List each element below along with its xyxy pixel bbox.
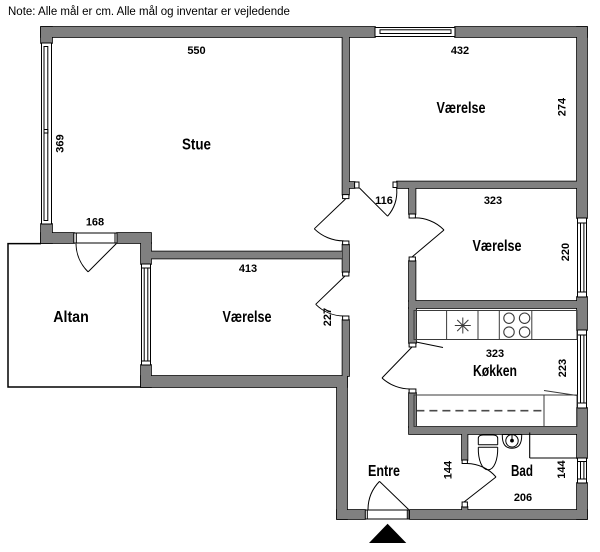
svg-text:369: 369 <box>55 134 67 152</box>
svg-text:Værelse: Værelse <box>437 100 486 117</box>
svg-text:Værelse: Værelse <box>223 309 272 326</box>
svg-text:Altan: Altan <box>53 309 89 326</box>
svg-text:220: 220 <box>560 243 572 261</box>
svg-text:Stue: Stue <box>182 137 211 154</box>
svg-text:Værelse: Værelse <box>473 238 522 255</box>
svg-text:223: 223 <box>557 359 569 377</box>
svg-text:Køkken: Køkken <box>473 363 517 380</box>
svg-text:168: 168 <box>86 217 104 229</box>
svg-text:274: 274 <box>557 97 569 116</box>
svg-text:323: 323 <box>484 195 502 207</box>
svg-text:227: 227 <box>322 308 334 326</box>
svg-text:116: 116 <box>375 195 393 207</box>
svg-text:Bad: Bad <box>511 463 533 480</box>
svg-text:Entre: Entre <box>368 463 400 480</box>
svg-text:432: 432 <box>451 45 469 57</box>
svg-text:144: 144 <box>556 459 568 478</box>
svg-text:323: 323 <box>486 348 504 360</box>
svg-text:206: 206 <box>514 492 532 504</box>
svg-text:413: 413 <box>239 263 257 275</box>
svg-text:Note: Alle mål er cm. Alle mål: Note: Alle mål er cm. Alle mål og invent… <box>8 6 290 18</box>
svg-text:144: 144 <box>443 460 455 479</box>
svg-text:550: 550 <box>187 45 205 57</box>
